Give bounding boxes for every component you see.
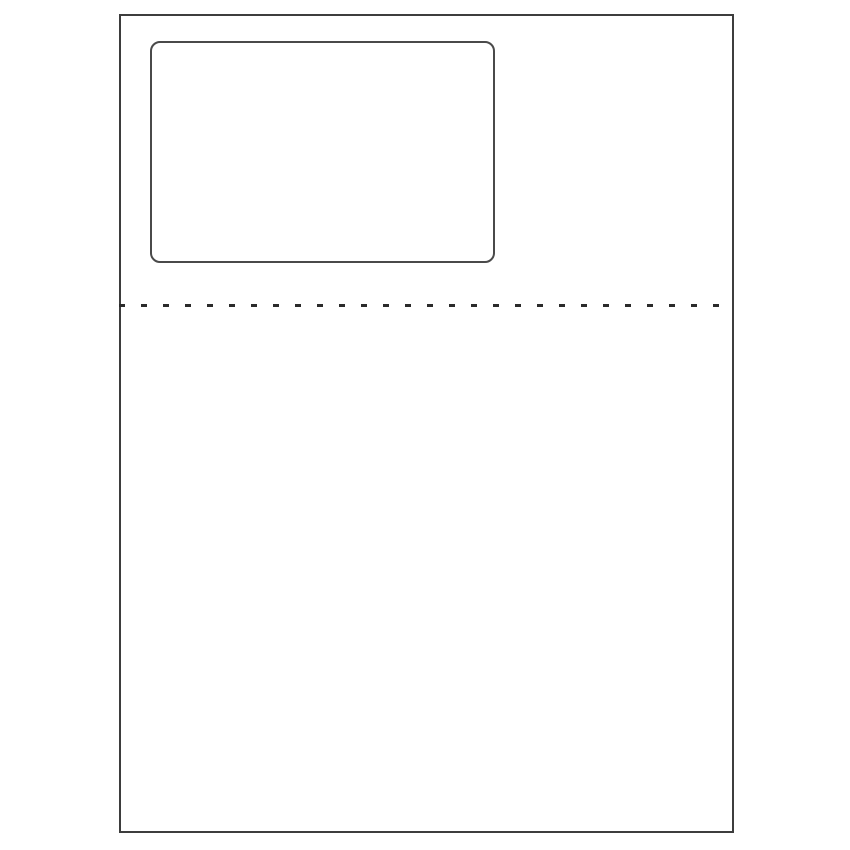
perforation-line [119,304,734,307]
label-area [150,41,495,263]
sheet-outline [119,14,734,833]
label-template-diagram [0,0,850,850]
